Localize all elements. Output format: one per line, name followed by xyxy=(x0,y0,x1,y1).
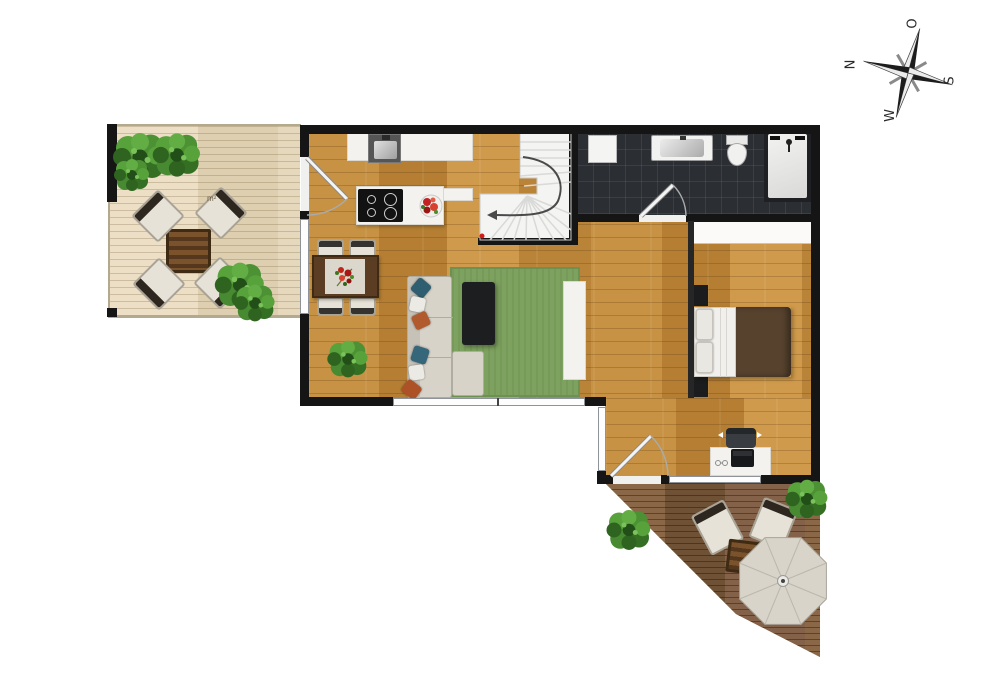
fruit-bowl-icon xyxy=(420,195,442,217)
stair-treads xyxy=(490,142,571,240)
compass-label-north: N xyxy=(843,60,858,70)
flowers-icon xyxy=(335,267,354,286)
plan-overlay xyxy=(0,0,991,692)
plant-icon xyxy=(785,480,827,518)
door-bedroom-terrace xyxy=(611,436,668,476)
shower-head-icon xyxy=(786,139,792,152)
plant-icon xyxy=(327,341,367,378)
stair-red-dot xyxy=(480,234,485,239)
glasses-icon xyxy=(716,461,728,466)
stair-arrowhead xyxy=(487,210,497,220)
plant-icon xyxy=(234,285,274,322)
door-bathroom xyxy=(641,185,686,216)
plant-icon xyxy=(153,133,200,176)
compass-label-west: W xyxy=(883,109,898,122)
compass-label-east: O xyxy=(906,18,921,28)
patio-umbrella-icon xyxy=(740,538,827,625)
door-terrace-kitchen xyxy=(307,158,347,215)
plant-icon xyxy=(607,510,651,550)
floor-plan: m² xyxy=(0,0,991,692)
compass-rose-icon xyxy=(852,17,965,130)
compass-label-south: S xyxy=(943,76,958,84)
plant-icon xyxy=(114,159,149,191)
